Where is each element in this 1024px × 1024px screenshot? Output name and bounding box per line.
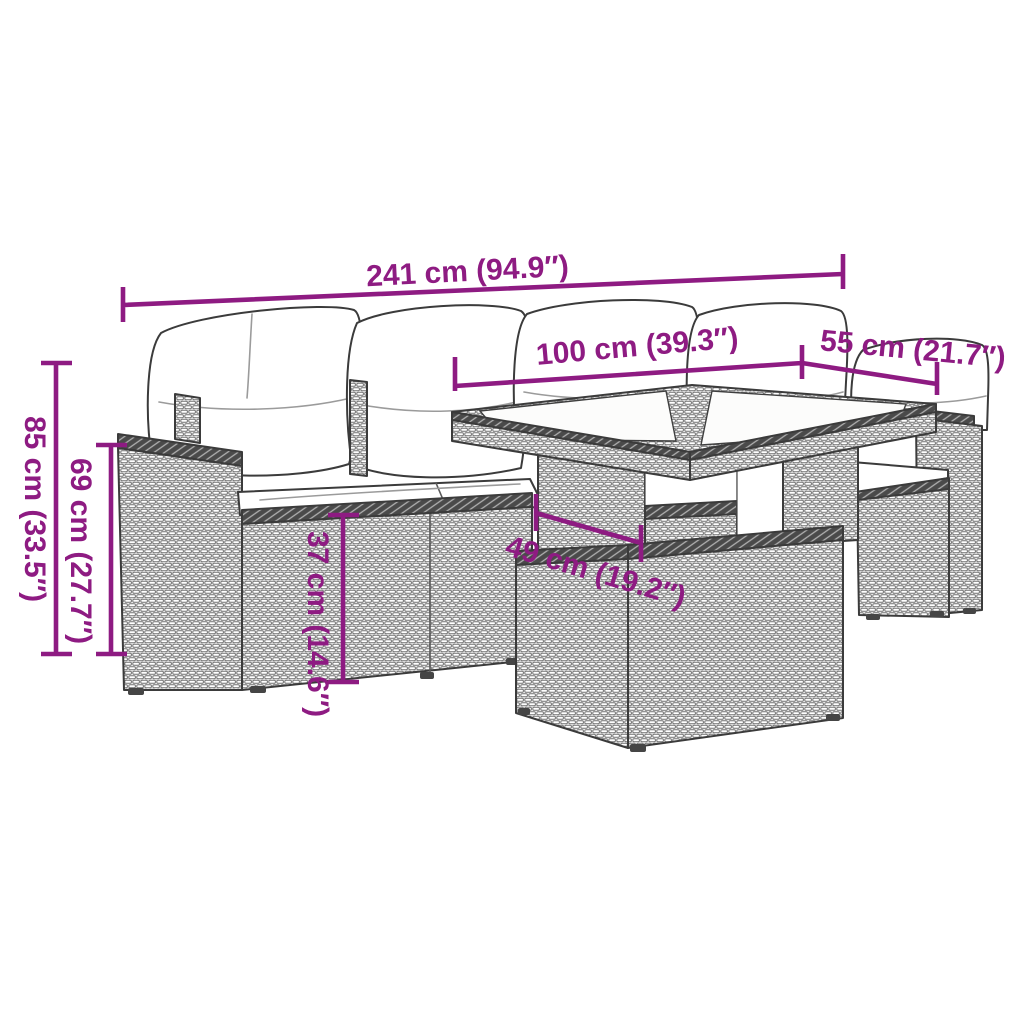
product-dimension-diagram: 241 cm (94.9″) 100 cm (39.3″) 55 cm (21.…: [0, 0, 1024, 1024]
dimension-label-total-height: 85 cm (33.5″): [18, 416, 51, 602]
dimension-label-arm-height: 69 cm (27.7″): [64, 458, 97, 644]
dimension-arm-height: 69 cm (27.7″): [64, 445, 127, 654]
ottoman-front: [628, 540, 843, 748]
dimension-label-seat-height: 37 cm (14.6″): [301, 531, 334, 717]
armrest-front: [118, 448, 242, 690]
diagram-canvas: 241 cm (94.9″) 100 cm (39.3″) 55 cm (21.…: [0, 0, 1024, 1024]
dimension-total-height: 85 cm (33.5″): [18, 363, 72, 654]
back-frame-post: [175, 394, 200, 443]
back-cushion-2: [347, 305, 530, 477]
chair-base-front: [857, 489, 949, 617]
sofa-base-front: [242, 507, 532, 690]
back-frame-post: [350, 380, 367, 476]
